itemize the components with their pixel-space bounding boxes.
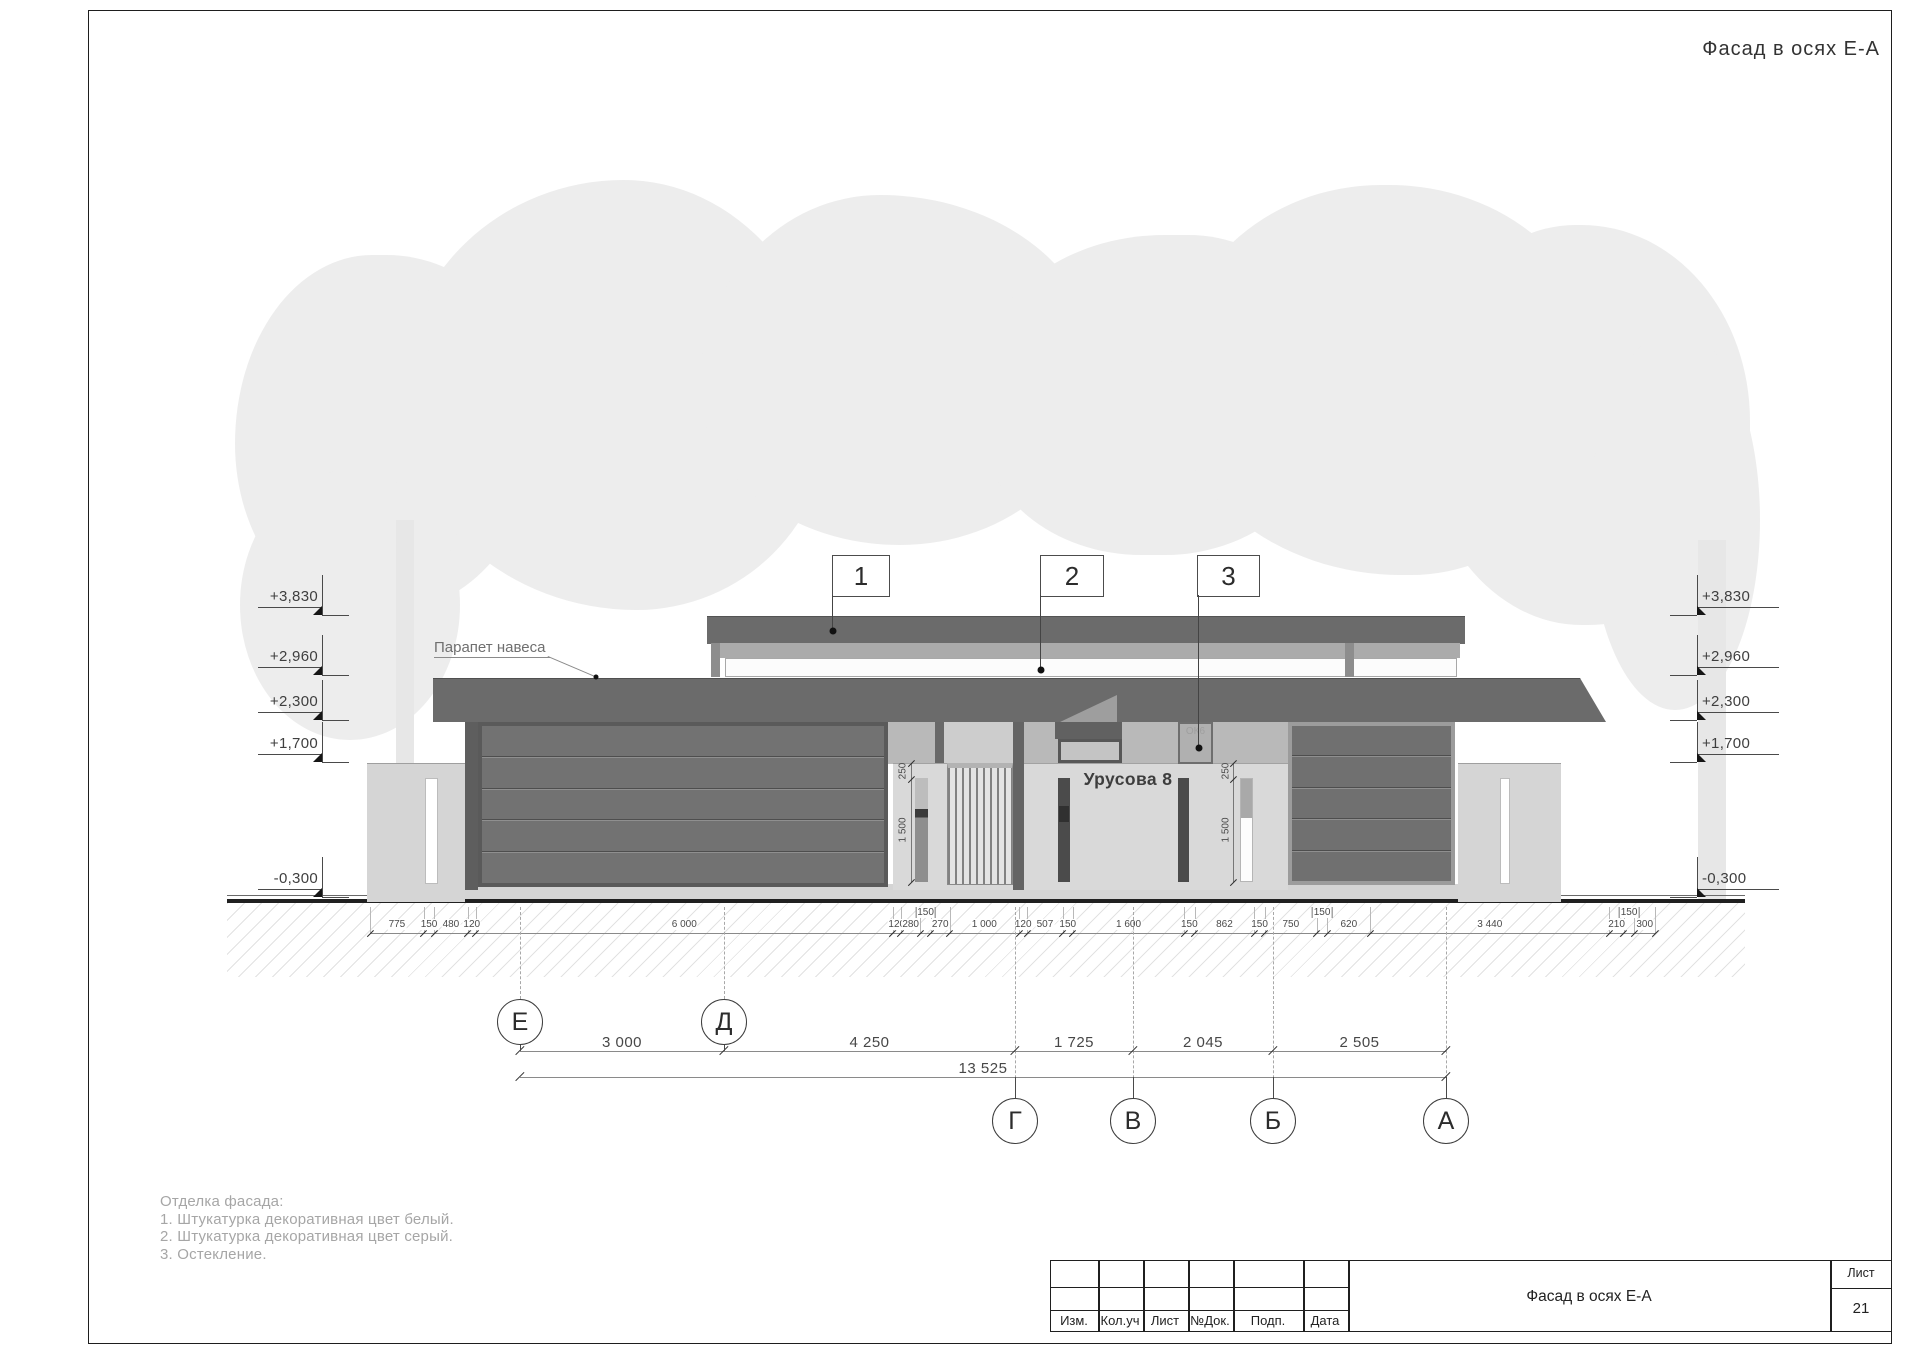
dimension-line-vertical (1233, 763, 1234, 882)
gate-post (1013, 722, 1024, 890)
slatted-gate (947, 763, 1013, 885)
title-block-row-line (1830, 1288, 1892, 1289)
dimension-label-small: 150 (1058, 919, 1077, 930)
title-block-row-line (1050, 1287, 1348, 1288)
elevation-label-left: +2,960 (246, 648, 318, 665)
axis-circle-stub (1273, 1077, 1274, 1098)
elevation-label-right: +1,700 (1702, 735, 1778, 752)
elevation-label-left: -0,300 (246, 870, 318, 887)
axis-total-label: 13 525 (959, 1060, 1008, 1077)
dimension-label-small: 210 (1607, 919, 1626, 930)
dimension-label-small: 3 440 (1476, 919, 1503, 930)
axis-circle: Д (701, 999, 747, 1045)
title-block-row-line (1050, 1310, 1348, 1311)
callout-leader-dot (829, 628, 836, 635)
garage-door-panel (482, 789, 884, 821)
axis-span-label: 2 045 (1183, 1034, 1223, 1051)
fence-slot (1058, 778, 1070, 882)
dimension-label-small: 120 (462, 919, 481, 930)
dimension-label-small: 300 (1635, 919, 1654, 930)
callout-number: 3 (1221, 561, 1235, 592)
elevation-level-tick (1670, 720, 1697, 721)
garage-door-panel (1292, 819, 1451, 850)
title-block-doc-title: Фасад в осях Е-А (1526, 1288, 1651, 1306)
elevation-drop-line (322, 857, 323, 897)
title-block-divider (1233, 1260, 1235, 1332)
fence-left (367, 763, 465, 902)
axis-circle-stub (1015, 1077, 1016, 1098)
note-item: 3. Остекление. (160, 1246, 454, 1264)
elevation-level-tick (322, 675, 349, 676)
window-label: ОК6 (1180, 726, 1211, 737)
callout-box-2: 2 (1040, 555, 1104, 597)
elevation-underline (1697, 667, 1779, 668)
garage-door-panel (482, 757, 884, 789)
elevation-label-left: +1,700 (246, 735, 318, 752)
main-roof-band (433, 678, 1606, 722)
axis-grid-line (520, 907, 521, 999)
elevation-level-tick (322, 762, 349, 763)
dimension-label-small: 1 600 (1115, 919, 1142, 930)
garage-door-right (1288, 722, 1455, 885)
title-block-divider (1098, 1260, 1100, 1332)
axis-grid-line (1015, 907, 1016, 1098)
title-block-divider (1348, 1260, 1350, 1332)
elevation-triangle (313, 888, 322, 897)
axis-circle-stub (1446, 1077, 1447, 1098)
elevation-drop-line (322, 575, 323, 615)
elevation-underline (1697, 607, 1779, 608)
axis-total-line (520, 1077, 1446, 1078)
dimension-label-small: 620 (1339, 919, 1358, 930)
garage-door-panel (1292, 726, 1451, 756)
axis-circle-stub (520, 1045, 521, 1051)
dimension-label-small: 150 (1180, 919, 1199, 930)
dimension-label-small: 150 (1250, 919, 1269, 930)
dimension-label-small: 150 (1619, 907, 1640, 918)
garage-door-panel (1292, 851, 1451, 881)
title-block-col-label: Лист (1151, 1313, 1179, 1328)
axis-circle: Б (1250, 1098, 1296, 1144)
elevation-underline (1697, 889, 1779, 890)
callout-leader (1198, 595, 1199, 745)
dimension-label-small: 120 (1014, 919, 1033, 930)
title-block-col-label: Кол.уч (1101, 1313, 1140, 1328)
callout-box-3: 3 (1197, 555, 1260, 597)
house-number-sign: Урусова 8 (1078, 769, 1178, 790)
gate-hardware (1059, 806, 1069, 822)
fence-slot (1240, 778, 1253, 882)
elevation-triangle (1697, 753, 1706, 762)
callout-leader (1040, 595, 1041, 667)
callout-number: 1 (854, 561, 868, 592)
elevation-triangle (313, 711, 322, 720)
fence-left-slot (425, 778, 438, 884)
dimension-label-small: 1 000 (971, 919, 998, 930)
dimension-extension-line (950, 907, 951, 933)
callout-box-1: 1 (832, 555, 890, 597)
dimension-label-small: 862 (1215, 919, 1234, 930)
dimension-label-vertical: 1 500 (898, 817, 909, 842)
elevation-triangle (313, 606, 322, 615)
elevation-level-tick (322, 615, 349, 616)
title-block-divider (1830, 1260, 1832, 1332)
dimension-label-small: 480 (442, 919, 461, 930)
fence-slot (1178, 778, 1189, 882)
sheet-number: 21 (1853, 1300, 1870, 1317)
elevation-underline (1697, 754, 1779, 755)
dimension-label-vertical: 1 500 (1221, 817, 1232, 842)
fence-right-slot (1500, 778, 1510, 884)
callout-leader (832, 595, 833, 628)
axis-grid-line (1133, 907, 1134, 1098)
title-block-divider (1303, 1260, 1305, 1332)
drawing-sheet: Фасад в осях Е-А (0, 0, 1920, 1357)
elevation-level-tick (322, 897, 349, 898)
axis-span-label: 3 000 (602, 1034, 642, 1051)
dimension-label-small: 150 (1312, 907, 1333, 918)
garage-door-panel (482, 852, 884, 883)
dimension-label-small: 280 (901, 919, 920, 930)
dimension-line-vertical (911, 763, 912, 882)
parapet-label: Парапет навеса (434, 639, 550, 658)
axis-grid-line (724, 907, 725, 999)
title-block-col-label: Изм. (1060, 1313, 1088, 1328)
sheet-title: Фасад в осях Е-А (1702, 38, 1880, 61)
callout-leader-dot (1037, 667, 1044, 674)
canopy-slab (707, 616, 1465, 644)
callout-leader-dot (1195, 745, 1202, 752)
elevation-triangle (1697, 888, 1706, 897)
notes-heading: Отделка фасада: (160, 1193, 454, 1211)
title-block-col-label: Подп. (1251, 1313, 1286, 1328)
axis-span-label: 2 505 (1339, 1034, 1379, 1051)
canopy-post (1345, 643, 1354, 677)
dimension-extension-line (1655, 907, 1656, 933)
elevation-triangle (1697, 711, 1706, 720)
dimension-label-small: 150 (420, 919, 439, 930)
elevation-drop-line (322, 635, 323, 675)
axis-span-label: 1 725 (1054, 1034, 1094, 1051)
dimension-label-small: 775 (388, 919, 407, 930)
entry-door-header (1055, 722, 1122, 739)
dimension-extension-line (370, 907, 371, 933)
elevation-drop-line (322, 722, 323, 762)
garage-door-panel (1292, 756, 1451, 787)
axis-circle: В (1110, 1098, 1156, 1144)
title-block-col-label: Дата (1311, 1313, 1340, 1328)
window: ОК6 (1178, 722, 1213, 764)
elevation-level-tick (1670, 675, 1697, 676)
dimension-extension-line (1370, 907, 1371, 933)
elevation-triangle (313, 753, 322, 762)
elevation-triangle (1697, 666, 1706, 675)
facade-notes: Отделка фасада: 1. Штукатурка декоративн… (160, 1193, 454, 1263)
dimension-label-vertical: 250 (898, 763, 909, 780)
callout-number: 2 (1065, 561, 1079, 592)
axis-circle: А (1423, 1098, 1469, 1144)
axis-grid-line (1446, 907, 1447, 1098)
dimension-label-small: 750 (1281, 919, 1300, 930)
sheet-cell-label: Лист (1847, 1266, 1874, 1280)
elevation-triangle (313, 666, 322, 675)
axis-circle: Г (992, 1098, 1038, 1144)
garage-door-panel (1292, 788, 1451, 819)
dimension-line-small (370, 933, 1655, 934)
axis-grid-line (1273, 907, 1274, 1098)
elevation-underline (1697, 712, 1779, 713)
dimension-label-small: 270 (931, 919, 950, 930)
axis-circle: Е (497, 999, 543, 1045)
note-item: 2. Штукатурка декоративная цвет серый. (160, 1228, 454, 1246)
title-block-col-label: №Док. (1190, 1313, 1229, 1328)
wall-corner-left (465, 722, 478, 890)
elevation-level-tick (1670, 615, 1697, 616)
elevation-triangle (1697, 606, 1706, 615)
dimension-label-small: 507 (1036, 919, 1055, 930)
canopy-post (711, 643, 720, 677)
elevation-label-left: +3,830 (246, 588, 318, 605)
axis-span-label: 4 250 (849, 1034, 889, 1051)
fence-slot (915, 778, 928, 882)
elevation-drop-line (322, 680, 323, 720)
elevation-label-right: -0,300 (1702, 870, 1778, 887)
parapet-leader-dot (594, 675, 599, 680)
dimension-label-small: 6 000 (671, 919, 698, 930)
tree-trunk (396, 520, 414, 765)
title-block-divider (1143, 1260, 1145, 1332)
axis-circle-stub (724, 1045, 725, 1051)
elevation-label-right: +3,830 (1702, 588, 1778, 605)
dimension-label-vertical: 250 (1221, 763, 1232, 780)
elevation-level-tick (1670, 762, 1697, 763)
ground-hatch (227, 903, 1745, 977)
note-item: 1. Штукатурка декоративная цвет белый. (160, 1211, 454, 1229)
elevation-label-left: +2,300 (246, 693, 318, 710)
dimension-label-small: 150 (915, 907, 936, 918)
garage-door-left (478, 722, 888, 887)
garage-door-panel (482, 820, 884, 852)
elevation-label-right: +2,960 (1702, 648, 1778, 665)
axis-circle-stub (1133, 1077, 1134, 1098)
entry-door (1058, 739, 1122, 763)
wall-panel-light (943, 722, 1013, 764)
elevation-label-right: +2,300 (1702, 693, 1778, 710)
elevation-level-tick (1670, 897, 1697, 898)
wall-post (935, 722, 944, 764)
garage-door-panel (482, 726, 884, 757)
elevation-level-tick (322, 720, 349, 721)
axis-dimension-line (520, 1051, 1446, 1052)
